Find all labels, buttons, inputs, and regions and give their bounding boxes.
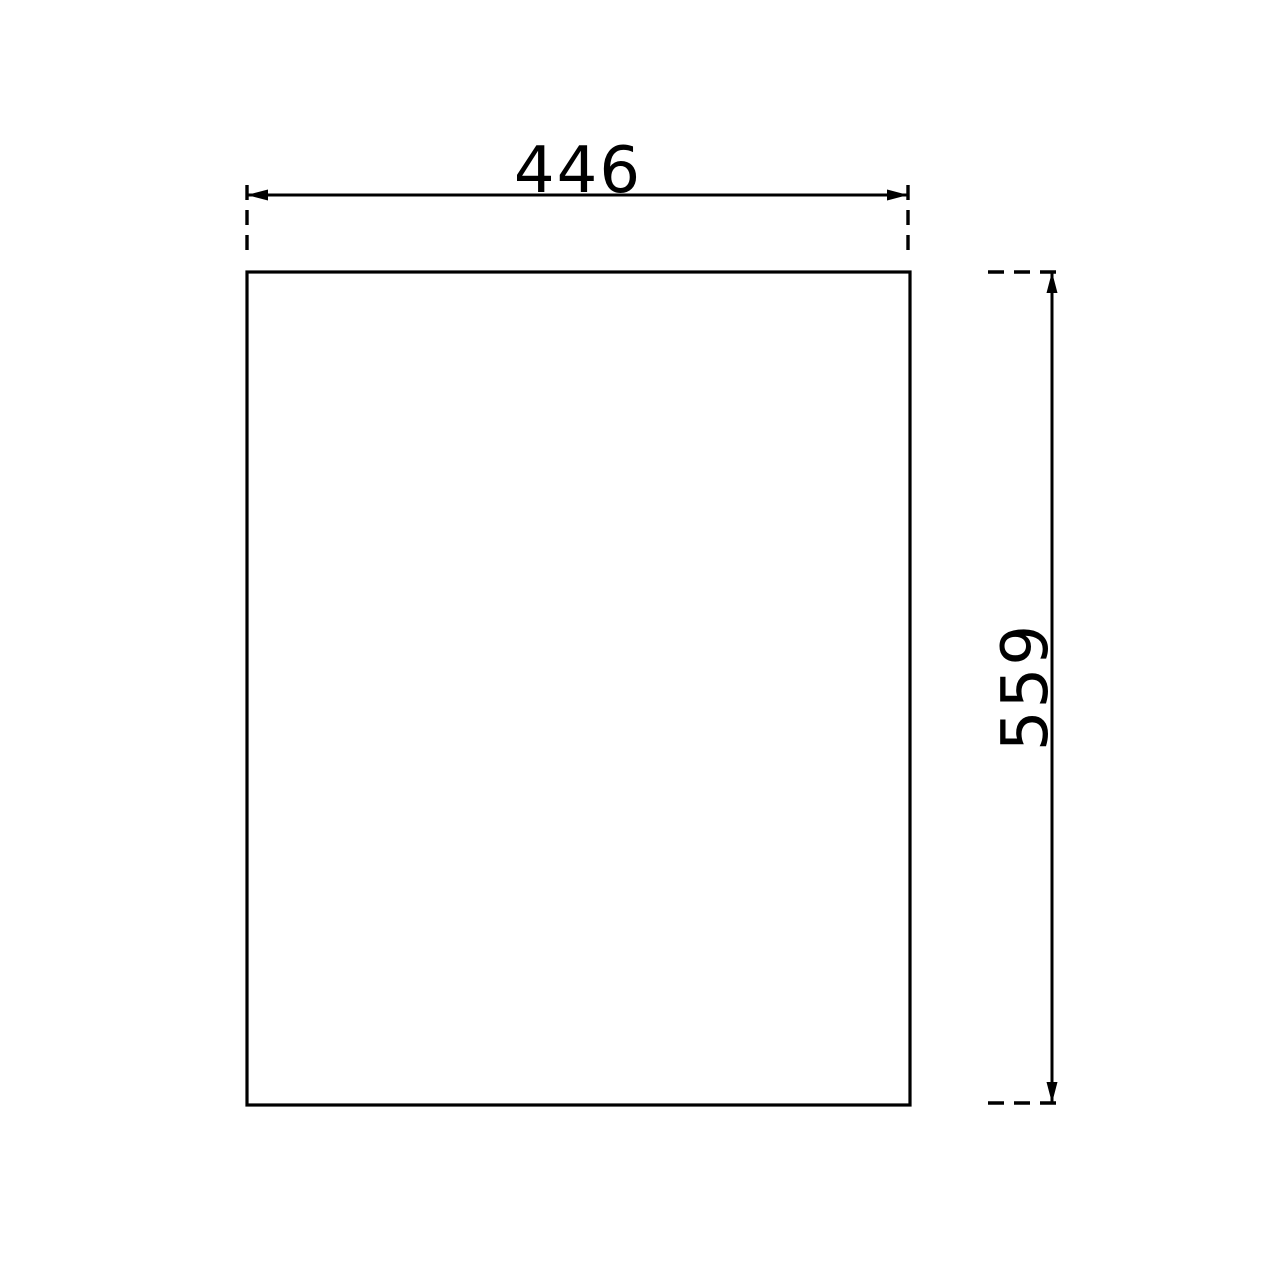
drawing-canvas: 446 559	[0, 0, 1276, 1276]
height-dimension: 559	[988, 272, 1063, 1103]
width-dimension: 446	[247, 134, 908, 256]
part-outline-rectangle	[247, 272, 910, 1105]
width-dimension-value: 446	[514, 134, 642, 208]
width-arrow-left-icon	[247, 190, 268, 201]
width-arrow-right-icon	[887, 190, 908, 201]
technical-drawing: 446 559	[0, 0, 1276, 1276]
height-arrow-bottom-icon	[1047, 1082, 1058, 1103]
height-dimension-value: 559	[989, 623, 1063, 751]
height-arrow-top-icon	[1047, 272, 1058, 293]
